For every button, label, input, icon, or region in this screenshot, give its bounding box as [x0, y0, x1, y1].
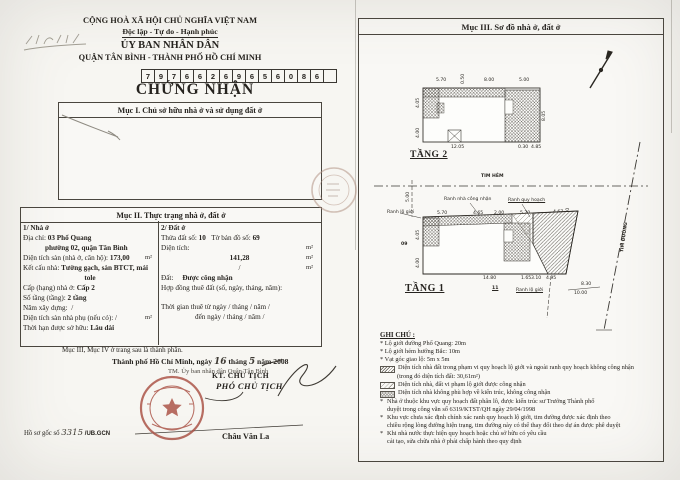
cross-hatch-legend-icon: [380, 391, 395, 398]
dim-label: 4.00: [416, 258, 421, 268]
national-motto: Độc lập - Tự do - Hạnh phúc: [112, 27, 228, 36]
note-road-width: * Lộ giới đường Phổ Quang: 20m: [380, 340, 654, 348]
section-2-heading: Mục II. Thực trạng nhà ở, đất ở: [21, 208, 321, 223]
scanned-certificate-document: CỘNG HOÀ XÃ HỘI CHỦ NGHĨA VIỆT NAM Độc l…: [0, 0, 680, 480]
handwritten-day: 16: [214, 357, 227, 367]
dim-label: 4.65: [473, 211, 483, 216]
lease-contract-label: Hợp đồng thuê đất (số, ngày, tháng, năm)…: [161, 284, 282, 292]
floor-area-value: 173,00: [110, 254, 130, 262]
aux-area-value: /: [115, 314, 117, 322]
address-value-line2: phường 02, quận Tân Bình: [45, 244, 128, 252]
dim-label: 0.30: [518, 145, 528, 150]
dim-label: 5.70: [436, 78, 446, 83]
dim-label: 4.05: [416, 98, 421, 108]
dim-label: TIM HẺM: [481, 174, 504, 179]
house-details-column: 1/ Nhà ở Địa chỉ: 03 Phổ Quang phường 02…: [23, 223, 157, 333]
handwritten-month: 5: [249, 357, 255, 367]
dim-label: 179,99 m2: [479, 248, 504, 253]
dim-label: 0.50: [566, 208, 571, 218]
year-built-label: Năm xây dựng:: [23, 304, 68, 312]
land-status-label: Đất:: [161, 274, 173, 282]
note-paragraph-3: *Khi nhà nước thực hiện quy hoạch hoặc c…: [380, 430, 654, 446]
code-digit-cell: [323, 69, 337, 83]
tenure-value: Lâu dài: [90, 324, 114, 332]
issuer-locality: QUẬN TÂN BÌNH - THÀNH PHỐ HỒ CHÍ MINH: [55, 53, 285, 62]
parcel-value: 10: [199, 234, 206, 242]
land-status-value: Được công nhận: [182, 274, 232, 282]
map-sheet-value: 69: [253, 234, 260, 242]
note-alley-width: * Lộ giới hẻm hướng Bắc: 10m: [380, 348, 654, 356]
floor1-label: TẦNG 1: [405, 283, 444, 294]
address-value: 03 Phổ Quang: [48, 234, 92, 242]
structure-label: Kết cấu nhà:: [23, 264, 59, 272]
code-digit-cell: 5: [258, 69, 272, 83]
dim-label: 11: [492, 286, 498, 291]
floor2-label: TẦNG 2: [410, 150, 448, 160]
note-paragraph-2: *Khu vực chưa xác định chính xác ranh qu…: [380, 414, 654, 430]
dim-label: 4.67: [553, 210, 563, 215]
legend-row-2: Diện tích nhà, đất vi phạm lộ giới được …: [380, 381, 654, 390]
dim-label: 5.00: [406, 192, 411, 202]
dim-label: 10.00: [470, 221, 483, 226]
grade-label: Cấp (hạng) nhà ở:: [23, 284, 75, 292]
dim-label: 4.00: [416, 128, 421, 138]
national-header: CỘNG HOÀ XÃ HỘI CHỦ NGHĨA VIỆT NAM: [60, 16, 280, 25]
page-fold-line: [355, 0, 356, 250]
floors-label: Số tầng (tầng):: [23, 294, 66, 302]
dim-label: 12.05: [451, 145, 464, 150]
notes-title: GHI CHÚ :: [380, 331, 654, 339]
floors-value: 2 tầng: [68, 294, 87, 302]
house-heading: 1/ Nhà ở: [23, 224, 49, 232]
dim-label: 10.85: [466, 90, 479, 95]
legend-2-text: Diện tích nhà, đất vi phạm lộ giới được …: [398, 381, 526, 389]
legend-row-1: Diện tích nhà đất trong phạm vi quy hoạc…: [380, 364, 654, 373]
dossier-line: Hồ sơ gốc số 3315 /UB.GCN: [24, 428, 110, 438]
dim-label: 3.10: [531, 276, 541, 281]
code-digit-cell: 6: [271, 69, 285, 83]
handwritten-dossier-number: 3315: [61, 428, 83, 438]
address-label: Địa chỉ:: [23, 234, 46, 242]
structure-value-line2: tole: [84, 274, 95, 282]
dim-label: 0.50: [424, 110, 434, 115]
legend-3-text: Diện tích nhà không phù hợp về kiến trúc…: [398, 389, 550, 397]
dim-label: 0.50: [461, 74, 466, 84]
lease-time-line1: Thời gian thuê từ ngày / tháng / năm /: [161, 303, 270, 311]
floor-area-unit: m²: [145, 253, 152, 263]
dim-label: 10.00: [574, 291, 587, 296]
footer-note: Mục III, Mục IV ở trang sau là thành phầ…: [62, 346, 183, 354]
year-built-value: /: [71, 304, 73, 312]
dim-label: 09: [401, 242, 407, 247]
note-corner-cut: * Vạt góc giao lộ: 5m x 5m: [380, 356, 654, 364]
dim-label: 4.85: [531, 145, 541, 150]
place-date-line: Thành phố Hồ Chí Minh, ngày 16 tháng 5 n…: [112, 357, 288, 367]
aux-area-unit: m²: [145, 313, 152, 323]
kt-chu-tich-line: KT. CHỦ TỊCH: [212, 371, 269, 380]
land-area-unit3: m²: [306, 263, 313, 273]
dim-label: 4.05: [416, 230, 421, 240]
dim-label: 4.95: [546, 276, 556, 281]
legend-1-text: Diện tích nhà đất trong phạm vi quy hoạc…: [398, 364, 634, 372]
dim-label: 5.00: [519, 78, 529, 83]
legend-1-subtext: (trong đó diện tích đất: 30,61m²): [380, 373, 654, 381]
dim-label: 1.65: [521, 276, 531, 281]
notes-block: GHI CHÚ : * Lộ giới đường Phổ Quang: 20m…: [380, 331, 654, 447]
deputy-title: PHÓ CHỦ TỊCH: [216, 381, 283, 391]
section-3-heading: Mục III. Sơ đồ nhà ở, đất ở: [359, 19, 663, 35]
note-paragraph-1: *Nhà ở thuộc khu vực quy hoạch đất phân …: [380, 398, 654, 414]
dim-label: 8.00: [484, 78, 494, 83]
dim-label: 5.70: [437, 211, 447, 216]
dim-label: 10: [488, 240, 494, 245]
dim-label: 14.80: [483, 276, 496, 281]
section-1-box: Mục I. Chủ sở hữu nhà ở và sử dụng đất ở: [58, 102, 322, 200]
land-area-label: Diện tích:: [161, 244, 190, 252]
issuer-name: ỦY BAN NHÂN DÂN: [90, 40, 250, 51]
land-area-shared-value: /: [239, 264, 241, 272]
code-digit-cell: 6: [310, 69, 324, 83]
dim-label: Ranh quy hoạch: [508, 198, 545, 203]
land-area-unit: m²: [306, 243, 313, 253]
tenure-label: Thời hạn được sở hữu:: [23, 324, 89, 332]
dim-label: 3.80: [526, 231, 531, 241]
certificate-title: CHỨNG NHẬN: [135, 81, 255, 99]
legend-row-3: Diện tích nhà không phù hợp về kiến trúc…: [380, 389, 654, 398]
page-edge-line: [671, 0, 672, 133]
floor-area-label: Diện tích sàn (nhà ở, căn hộ):: [23, 254, 108, 262]
code-digit-cell: 8: [297, 69, 311, 83]
section-2-column-divider: [158, 221, 159, 345]
dim-label: Ranh nhà công nhận: [444, 197, 491, 202]
land-heading: 2/ Đất ở: [161, 224, 185, 232]
diagonal-hatch-legend-icon: [380, 366, 395, 373]
dim-label: 8.05: [542, 111, 547, 121]
map-sheet-label: Tờ bản đồ số:: [211, 234, 251, 242]
dim-label: 8.30: [581, 282, 591, 287]
signer-name: Châu Văn La: [222, 432, 269, 441]
dim-label: 3.00: [499, 102, 504, 112]
grade-value: Cấp 2: [77, 284, 95, 292]
aux-area-label: Diện tích sàn nhà phụ (nếu có):: [23, 314, 113, 322]
dim-label: Ranh lộ giới: [387, 210, 414, 215]
sparse-hatch-legend-icon: [380, 382, 395, 389]
dim-label: 1.00: [501, 118, 506, 128]
land-details-column: 2/ Đất ở Thửa đất số: 10 Tờ bản đồ số: 6…: [161, 223, 318, 322]
land-area-value: 141,28: [230, 254, 250, 262]
structure-value: Tường gạch, sàn BTCT, mái: [61, 264, 148, 272]
parcel-label: Thửa đất số:: [161, 234, 197, 242]
land-area-unit2: m²: [306, 253, 313, 263]
section-1-heading: Mục I. Chủ sở hữu nhà ở và sử dụng đất ở: [59, 103, 321, 118]
code-digit-cell: 0: [284, 69, 298, 83]
dim-label: Ranh lộ giới: [516, 288, 543, 293]
dim-label: 3.70: [428, 232, 433, 242]
dim-label: 2.00: [494, 211, 504, 216]
pencil-scribble: [24, 34, 86, 50]
official-red-stamp: [141, 377, 203, 439]
lease-time-line2: đến ngày / tháng / năm /: [195, 313, 264, 321]
dim-label: 5.70: [520, 211, 530, 216]
